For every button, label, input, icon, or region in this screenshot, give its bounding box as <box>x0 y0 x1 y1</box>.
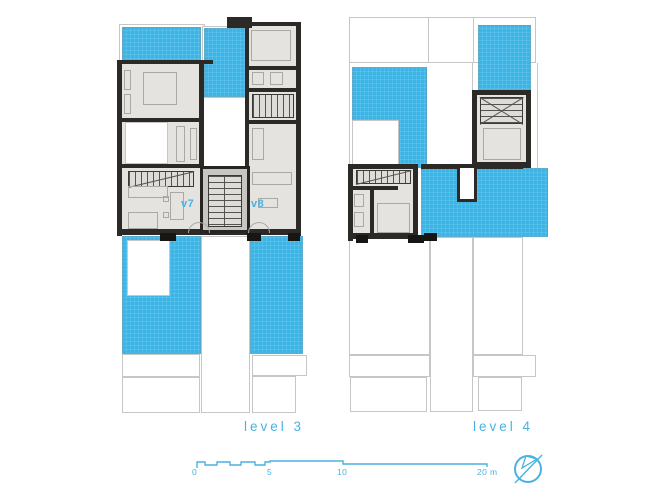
roof-outline <box>473 237 523 355</box>
closet <box>252 128 264 160</box>
roof-outline <box>349 355 430 377</box>
wall-segment <box>245 22 301 26</box>
wall-segment <box>199 64 204 168</box>
wall-segment <box>370 190 374 233</box>
wall-segment <box>472 90 477 167</box>
scale-bar: 0 5 10 20 m <box>180 446 560 486</box>
plan-title-level-4: level 4 <box>458 419 548 434</box>
roof-outline <box>201 236 250 413</box>
bath-fixture <box>270 72 283 85</box>
wall-segment <box>348 164 353 241</box>
chair <box>163 212 169 218</box>
bed <box>377 203 410 233</box>
roof-outline <box>478 377 522 411</box>
roof-outline <box>122 354 200 377</box>
roof-line <box>349 63 350 167</box>
wall-segment <box>472 90 531 95</box>
roof-line <box>472 63 473 93</box>
roof-line <box>537 63 538 168</box>
closet <box>124 70 131 90</box>
unit-label-v8: v8 <box>251 198 264 210</box>
roof-outline <box>473 355 536 377</box>
wall-segment <box>249 88 296 92</box>
door-tab <box>288 233 300 241</box>
wall-segment <box>122 164 200 168</box>
door-tab <box>247 233 261 241</box>
scale-tick-10: 10 <box>337 467 347 477</box>
scale-tick-0: 0 <box>192 467 197 477</box>
wall-segment <box>122 118 199 122</box>
wall-segment <box>249 120 296 124</box>
wall-segment <box>296 22 301 236</box>
kitchen-counter <box>176 126 185 162</box>
lower-roof-void <box>352 120 399 168</box>
terrace-area <box>478 25 531 93</box>
sofa <box>128 212 158 229</box>
terrace-notch <box>457 168 477 202</box>
roof-line <box>428 17 429 63</box>
sofa <box>252 172 292 185</box>
wall-segment <box>348 164 417 169</box>
closet <box>124 94 131 114</box>
door-tab <box>408 235 424 243</box>
chair <box>163 196 169 202</box>
roof-line <box>473 17 474 63</box>
scale-tick-5: 5 <box>267 467 272 477</box>
scale-tick-20m: 20 m <box>477 467 498 477</box>
terrace-area <box>122 27 201 63</box>
lower-roof-void <box>127 240 170 296</box>
sofa <box>128 186 168 198</box>
wall-segment <box>249 66 296 70</box>
roof-outline <box>122 377 200 413</box>
roof-outline <box>252 376 296 413</box>
stair-rail-line <box>224 176 225 226</box>
plan-title-level-3: level 3 <box>229 419 319 434</box>
door-tab <box>424 233 437 241</box>
wall-segment <box>117 60 122 236</box>
unit-label-v7: v7 <box>181 198 194 210</box>
roof-outline <box>430 237 473 412</box>
bed <box>143 72 177 105</box>
architectural-drawing: v7 v8 level 3 <box>0 0 670 502</box>
bath-fixture <box>354 212 364 227</box>
terrace-area <box>250 236 303 354</box>
wall-segment <box>472 162 531 168</box>
bath-fixture <box>252 72 264 85</box>
door-tab <box>356 235 368 243</box>
roof-outline <box>350 377 427 412</box>
door-tab <box>160 233 176 241</box>
wall-segment <box>526 90 531 167</box>
core-staircase <box>208 175 242 227</box>
roof-outline <box>349 237 430 355</box>
wall-segment <box>413 164 418 241</box>
patio-void <box>125 122 168 164</box>
kitchen-counter <box>190 128 197 160</box>
bath-fixture <box>354 194 364 207</box>
north-arrow-icon <box>511 452 547 488</box>
staircase <box>252 94 294 118</box>
terrace-area <box>421 168 548 237</box>
wall-segment <box>353 186 398 190</box>
roof-outline <box>252 355 307 376</box>
bed <box>251 30 291 61</box>
bed <box>483 128 521 160</box>
